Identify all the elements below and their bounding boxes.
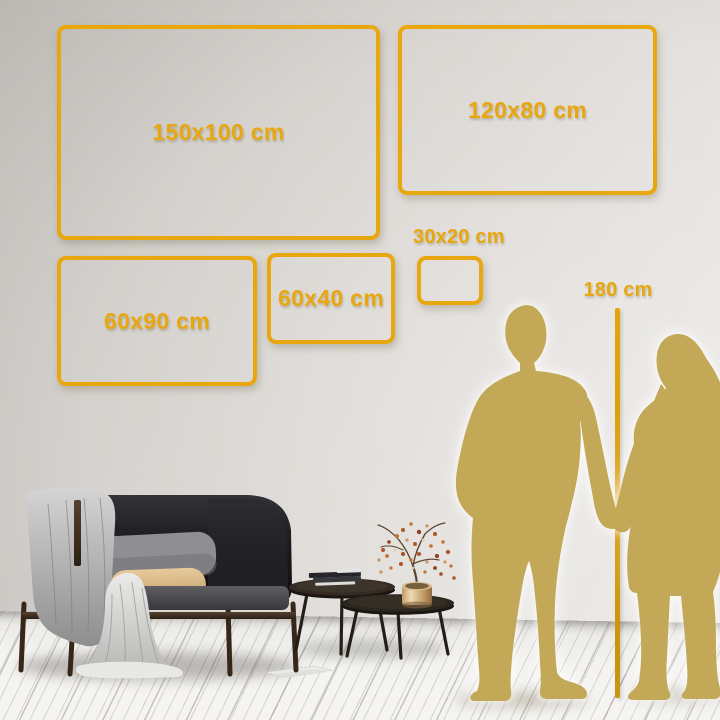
woman-silhouette [613,334,720,700]
sofa-wood-post [74,500,81,566]
size-label-60x90: 60x90 cm [104,308,210,335]
size-label-120x80: 120x80 cm [468,97,587,124]
couple-silhouette-illustration [440,296,720,710]
size-label-150x100: 150x100 cm [152,119,284,146]
size-frame-60x40: 60x40 cm [267,253,395,344]
size-label-30x20: 30x20 cm [413,226,505,249]
sofa-illustration [8,484,308,680]
coffee-tables-illustration [285,516,457,664]
brass-vase [402,582,432,609]
size-comparison-scene: 150x100 cm 120x80 cm 60x90 cm 60x40 cm 3… [0,0,720,720]
man-silhouette [456,305,618,701]
coffee-table-low [342,594,454,658]
coffee-table-tall [289,579,395,655]
size-frame-120x80: 120x80 cm [398,25,657,195]
stacked-books [309,568,362,586]
size-label-60x40: 60x40 cm [278,285,384,312]
gray-blanket [26,488,115,647]
size-frame-150x100: 150x100 cm [57,25,380,240]
size-frame-60x90: 60x90 cm [57,256,257,386]
